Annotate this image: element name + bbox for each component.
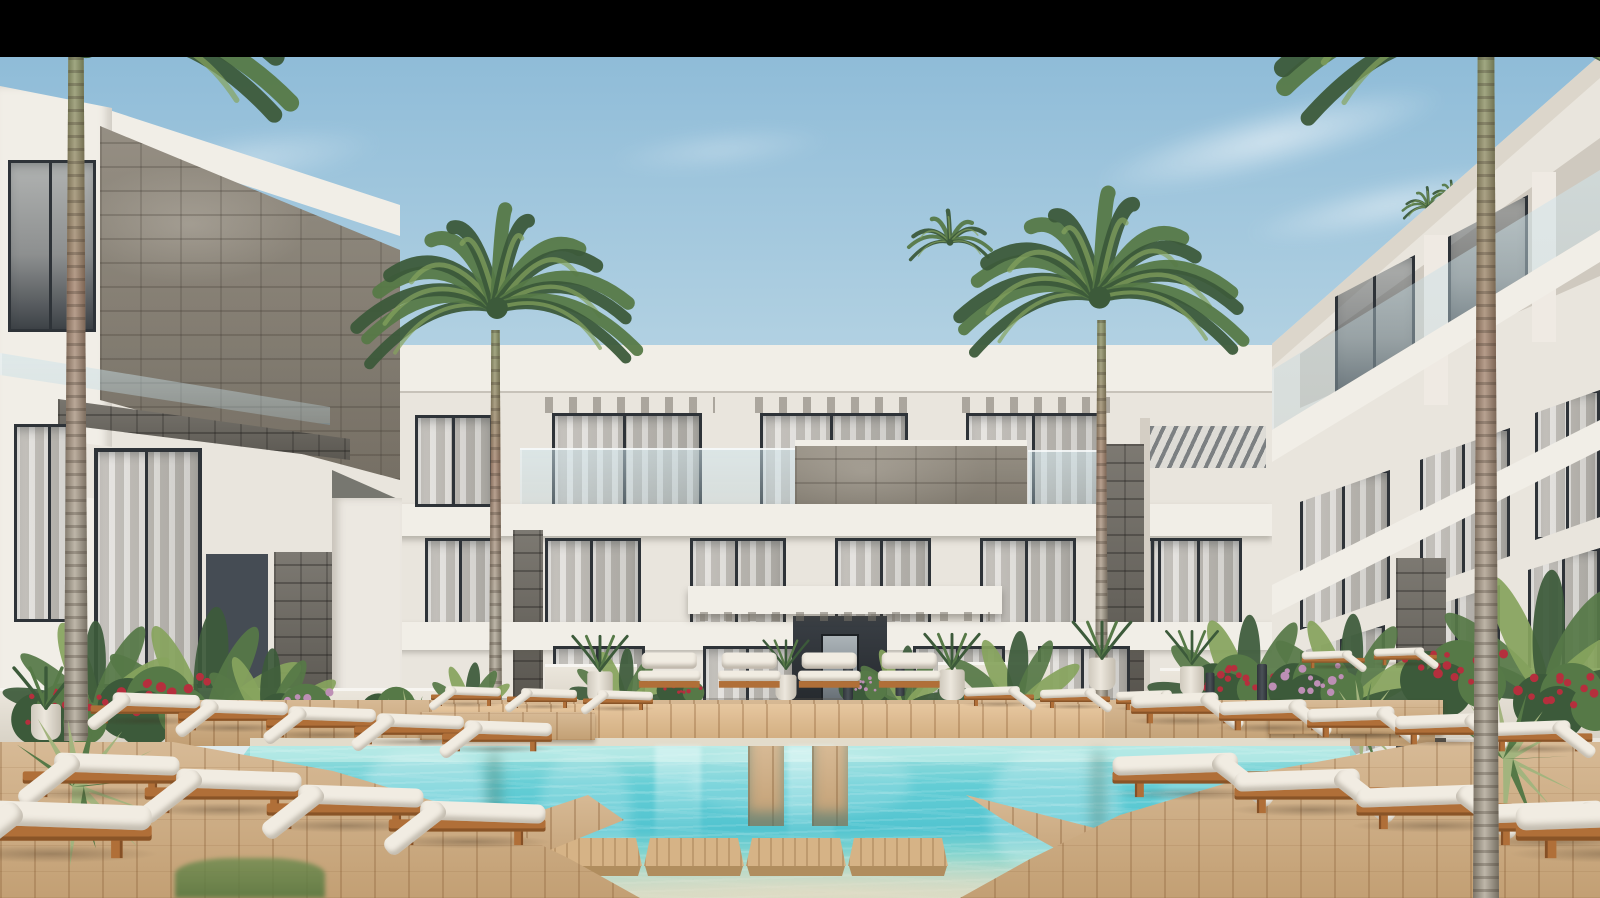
pergola-slats	[962, 397, 1110, 413]
wood-pier	[748, 746, 784, 826]
window	[8, 160, 96, 332]
glass-balustrade	[520, 448, 798, 508]
terrace-platform	[420, 712, 595, 740]
terrace-platform	[1268, 700, 1443, 734]
platform-top	[848, 838, 948, 866]
window	[425, 538, 497, 628]
grass-patch	[175, 858, 325, 898]
window	[94, 448, 202, 688]
wood-platform	[848, 838, 948, 878]
window	[1158, 538, 1242, 628]
window	[980, 538, 1076, 628]
louver-screen	[1150, 426, 1266, 468]
platform-front	[747, 866, 845, 876]
pergola-slats	[545, 397, 715, 413]
window	[14, 424, 86, 622]
resort-render-image	[0, 0, 1600, 898]
dark-panel	[206, 554, 268, 706]
platform-front	[645, 866, 743, 876]
platform-top	[746, 838, 846, 866]
pergola-slats	[755, 397, 923, 413]
wood-platform	[644, 838, 744, 878]
water-channel	[655, 746, 701, 850]
window	[415, 415, 493, 507]
platform-front	[849, 866, 947, 876]
platform-top	[644, 838, 744, 866]
parapet	[388, 345, 1272, 395]
window	[545, 538, 641, 628]
entrance-canopy	[688, 586, 1002, 614]
letterbox-bar	[0, 0, 1600, 57]
canopy-slats	[700, 612, 990, 621]
wood-platform	[746, 838, 846, 878]
wood-pier	[812, 746, 848, 826]
